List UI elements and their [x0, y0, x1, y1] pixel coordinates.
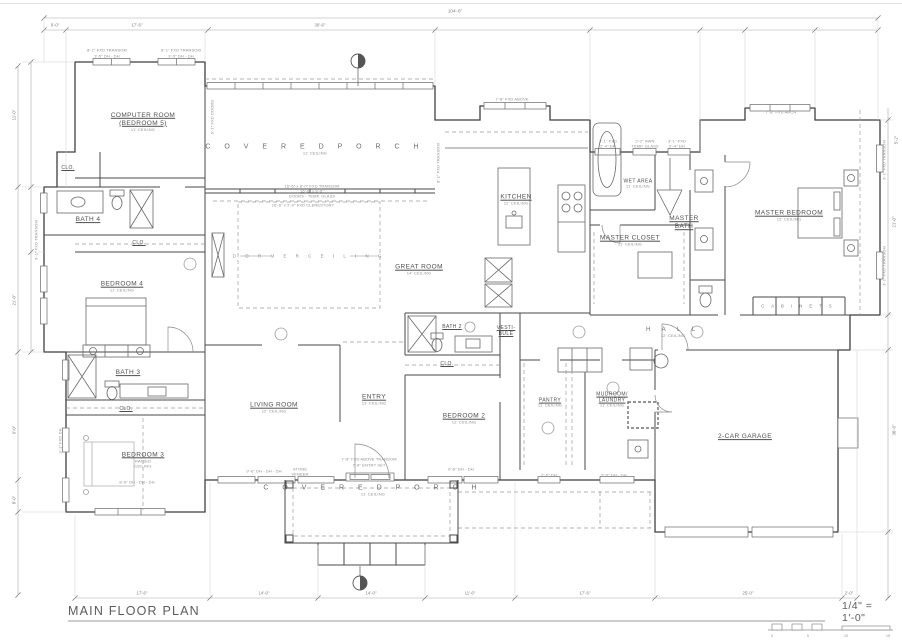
scale-bar-tick: 0	[771, 634, 773, 638]
dimension-label: 17'-6"	[137, 591, 148, 596]
door-swings	[168, 162, 750, 478]
room-label-covered-porch-bottom: C O V E R E D P O R C H 11' CEILING	[263, 484, 482, 497]
window-annotation: 9'-6" DH - DH - DH	[246, 468, 281, 473]
scale-bar-tick: 15	[886, 634, 890, 638]
room-label-bedroom4: BEDROOM 4 11' CEILING	[101, 281, 144, 294]
window-annotation: 3'-1" FXD TRANSOM	[882, 246, 887, 286]
room-label-great-room: GREAT ROOM 14' CEILING	[395, 264, 443, 277]
drawing-scale: 1/4" = 1'-0"	[842, 600, 882, 624]
room-label-entry: ENTRY 13' CEILING	[362, 394, 387, 407]
room-label-computer-room: COMPUTER ROOM (BEDROOM 5) 11' CEILING	[111, 112, 175, 132]
room-label-wet-area: WET AREA 11' CEILING	[624, 179, 653, 190]
room-label-master-bath: MASTER BATH	[669, 215, 699, 231]
window-annotation: 8'-1" FXD TRANSOM	[87, 48, 127, 53]
window-annotation: 9'-1" FXD TRANSOM	[34, 220, 39, 260]
title-block-lines	[68, 621, 893, 630]
dimension-label: 5'-2"	[894, 136, 899, 145]
fixtures	[57, 123, 858, 458]
room-label-dormer-ceiling: D O R M E R C E I L I N G	[233, 253, 386, 258]
window-annotation: 2'-2" AWN	[636, 138, 655, 143]
window-annotation: 8'-1" FXD TRANSOM	[161, 48, 201, 53]
room-label-clo-computer: CLO.	[61, 165, 74, 171]
room-label-bath2: BATH 2	[442, 324, 462, 330]
dimension-label: 30'-6"	[892, 425, 897, 436]
dimension-label: 9'-0"	[12, 426, 17, 435]
dimension-label: 11'-6"	[465, 591, 476, 596]
window-annotation: TEMP. GLASS	[631, 144, 658, 149]
dimension-label: 8'-0"	[12, 496, 17, 505]
room-label-garage: 2-CAR GARAGE	[718, 433, 772, 441]
room-label-clo-hall: CLO.	[119, 406, 132, 412]
floorplan-drawing	[0, 0, 902, 642]
window-annotation: 3'-1" FXD	[668, 138, 686, 143]
room-label-master-closet: MASTER CLOSET 11' CEILING	[600, 235, 660, 248]
room-label-pantry: PANTRY 11' CEILING	[538, 398, 562, 409]
dimension-label: 21'-0"	[892, 217, 897, 228]
window-annotation: 3'-5" DH - DH	[168, 53, 194, 58]
room-label-kitchen: KITCHEN 12' CEILING	[500, 194, 531, 207]
window-annotation: 2'-4" DH	[669, 144, 685, 149]
room-label-mudroom-laundry: MUDROOM/ LAUNDRY 11' CEILING	[596, 392, 628, 409]
window-annotation: DOORS - TEMP. GLASS	[289, 194, 335, 199]
dimension-label: 25'-0"	[743, 591, 754, 596]
dimension-label: 17'-6"	[132, 23, 143, 28]
window-annotation: 8'-6" DH - DH - DH	[119, 479, 154, 484]
drawing-title: MAIN FLOOR PLAN	[68, 604, 200, 618]
room-label-covered-porch-top: C O V E R E D P O R C H 11' CEILING	[205, 143, 424, 156]
window-annotation: 7'-8" ENTRY SET	[353, 462, 386, 467]
window-annotation: 2'-5" DH	[541, 473, 557, 478]
dimension-label: 21'-0"	[12, 295, 17, 306]
window-annotation: 5'-5" DH - DH	[601, 473, 627, 478]
window-annotation: VENEER	[291, 472, 308, 477]
dimension-label: 2'-0"	[845, 591, 854, 596]
scale-bar-tick: 10	[844, 634, 848, 638]
dimension-label: 17'-6"	[580, 591, 591, 596]
room-label-clo-bed2: CLO.	[440, 361, 453, 367]
window-annotation: 3'-1" FXD TRANSOM	[882, 140, 887, 180]
room-label-bedroom3: BEDROOM 3 RAISED CEILING	[122, 451, 165, 468]
room-label-bath4: BATH 4	[76, 216, 101, 224]
room-label-cabinets: C A B I N E T S	[761, 303, 834, 308]
window-annotation: 3'-5" DH - DH	[94, 53, 120, 58]
window-annotation: 2'-4" DH	[600, 144, 616, 149]
scale-bar-tick: 5	[807, 634, 809, 638]
window-annotation: 8'-1" FXD TRANSOM	[436, 143, 441, 183]
window-annotation: 7'-8" FXD ABOVE	[495, 97, 528, 102]
dimension-label: 104'-6"	[448, 9, 462, 14]
room-label-master-bedroom: MASTER BEDROOM 12' CEILING	[755, 210, 823, 223]
room-label-bedroom2: BEDROOM 2 12' CEILING	[443, 413, 486, 426]
window-annotation: 3'-1" FXD	[599, 138, 617, 143]
dimension-label: 9'-0"	[51, 23, 60, 28]
dimension-label: 30'-6"	[315, 23, 326, 28]
window-annotation: 9'-1" FXD DOORS	[210, 100, 215, 134]
room-label-hall: H A L L 12' CEILING	[646, 327, 700, 339]
dimension-label: 14'-0"	[366, 591, 377, 596]
reference-markers	[351, 54, 367, 590]
window-annotation: 16'-6" x 2'-0" FXD CLERESTORY	[272, 203, 334, 208]
window-annotation: 7'-8" FXD ARCH	[766, 110, 797, 115]
room-label-living-room: LIVING ROOM 12' CEILING	[250, 402, 298, 415]
room-label-vestibule: VESTI- BULE	[497, 325, 516, 337]
window-annotation: 6'-6" DH - DH	[448, 466, 474, 471]
dimension-label: 14'-0"	[259, 591, 270, 596]
dimension-label: 11'-0"	[12, 110, 17, 121]
window-annotation: 7'-8" FXD ABOVE TRANSOM	[341, 457, 396, 462]
floorplan-canvas: COMPUTER ROOM (BEDROOM 5) 11' CEILING C …	[0, 0, 902, 642]
washer-dryer	[628, 402, 658, 428]
window-annotation: 3'-1" FXD DH	[58, 428, 63, 453]
room-label-bath3: BATH 3	[116, 369, 141, 377]
room-label-clo-bed4: CLO.	[132, 240, 145, 246]
